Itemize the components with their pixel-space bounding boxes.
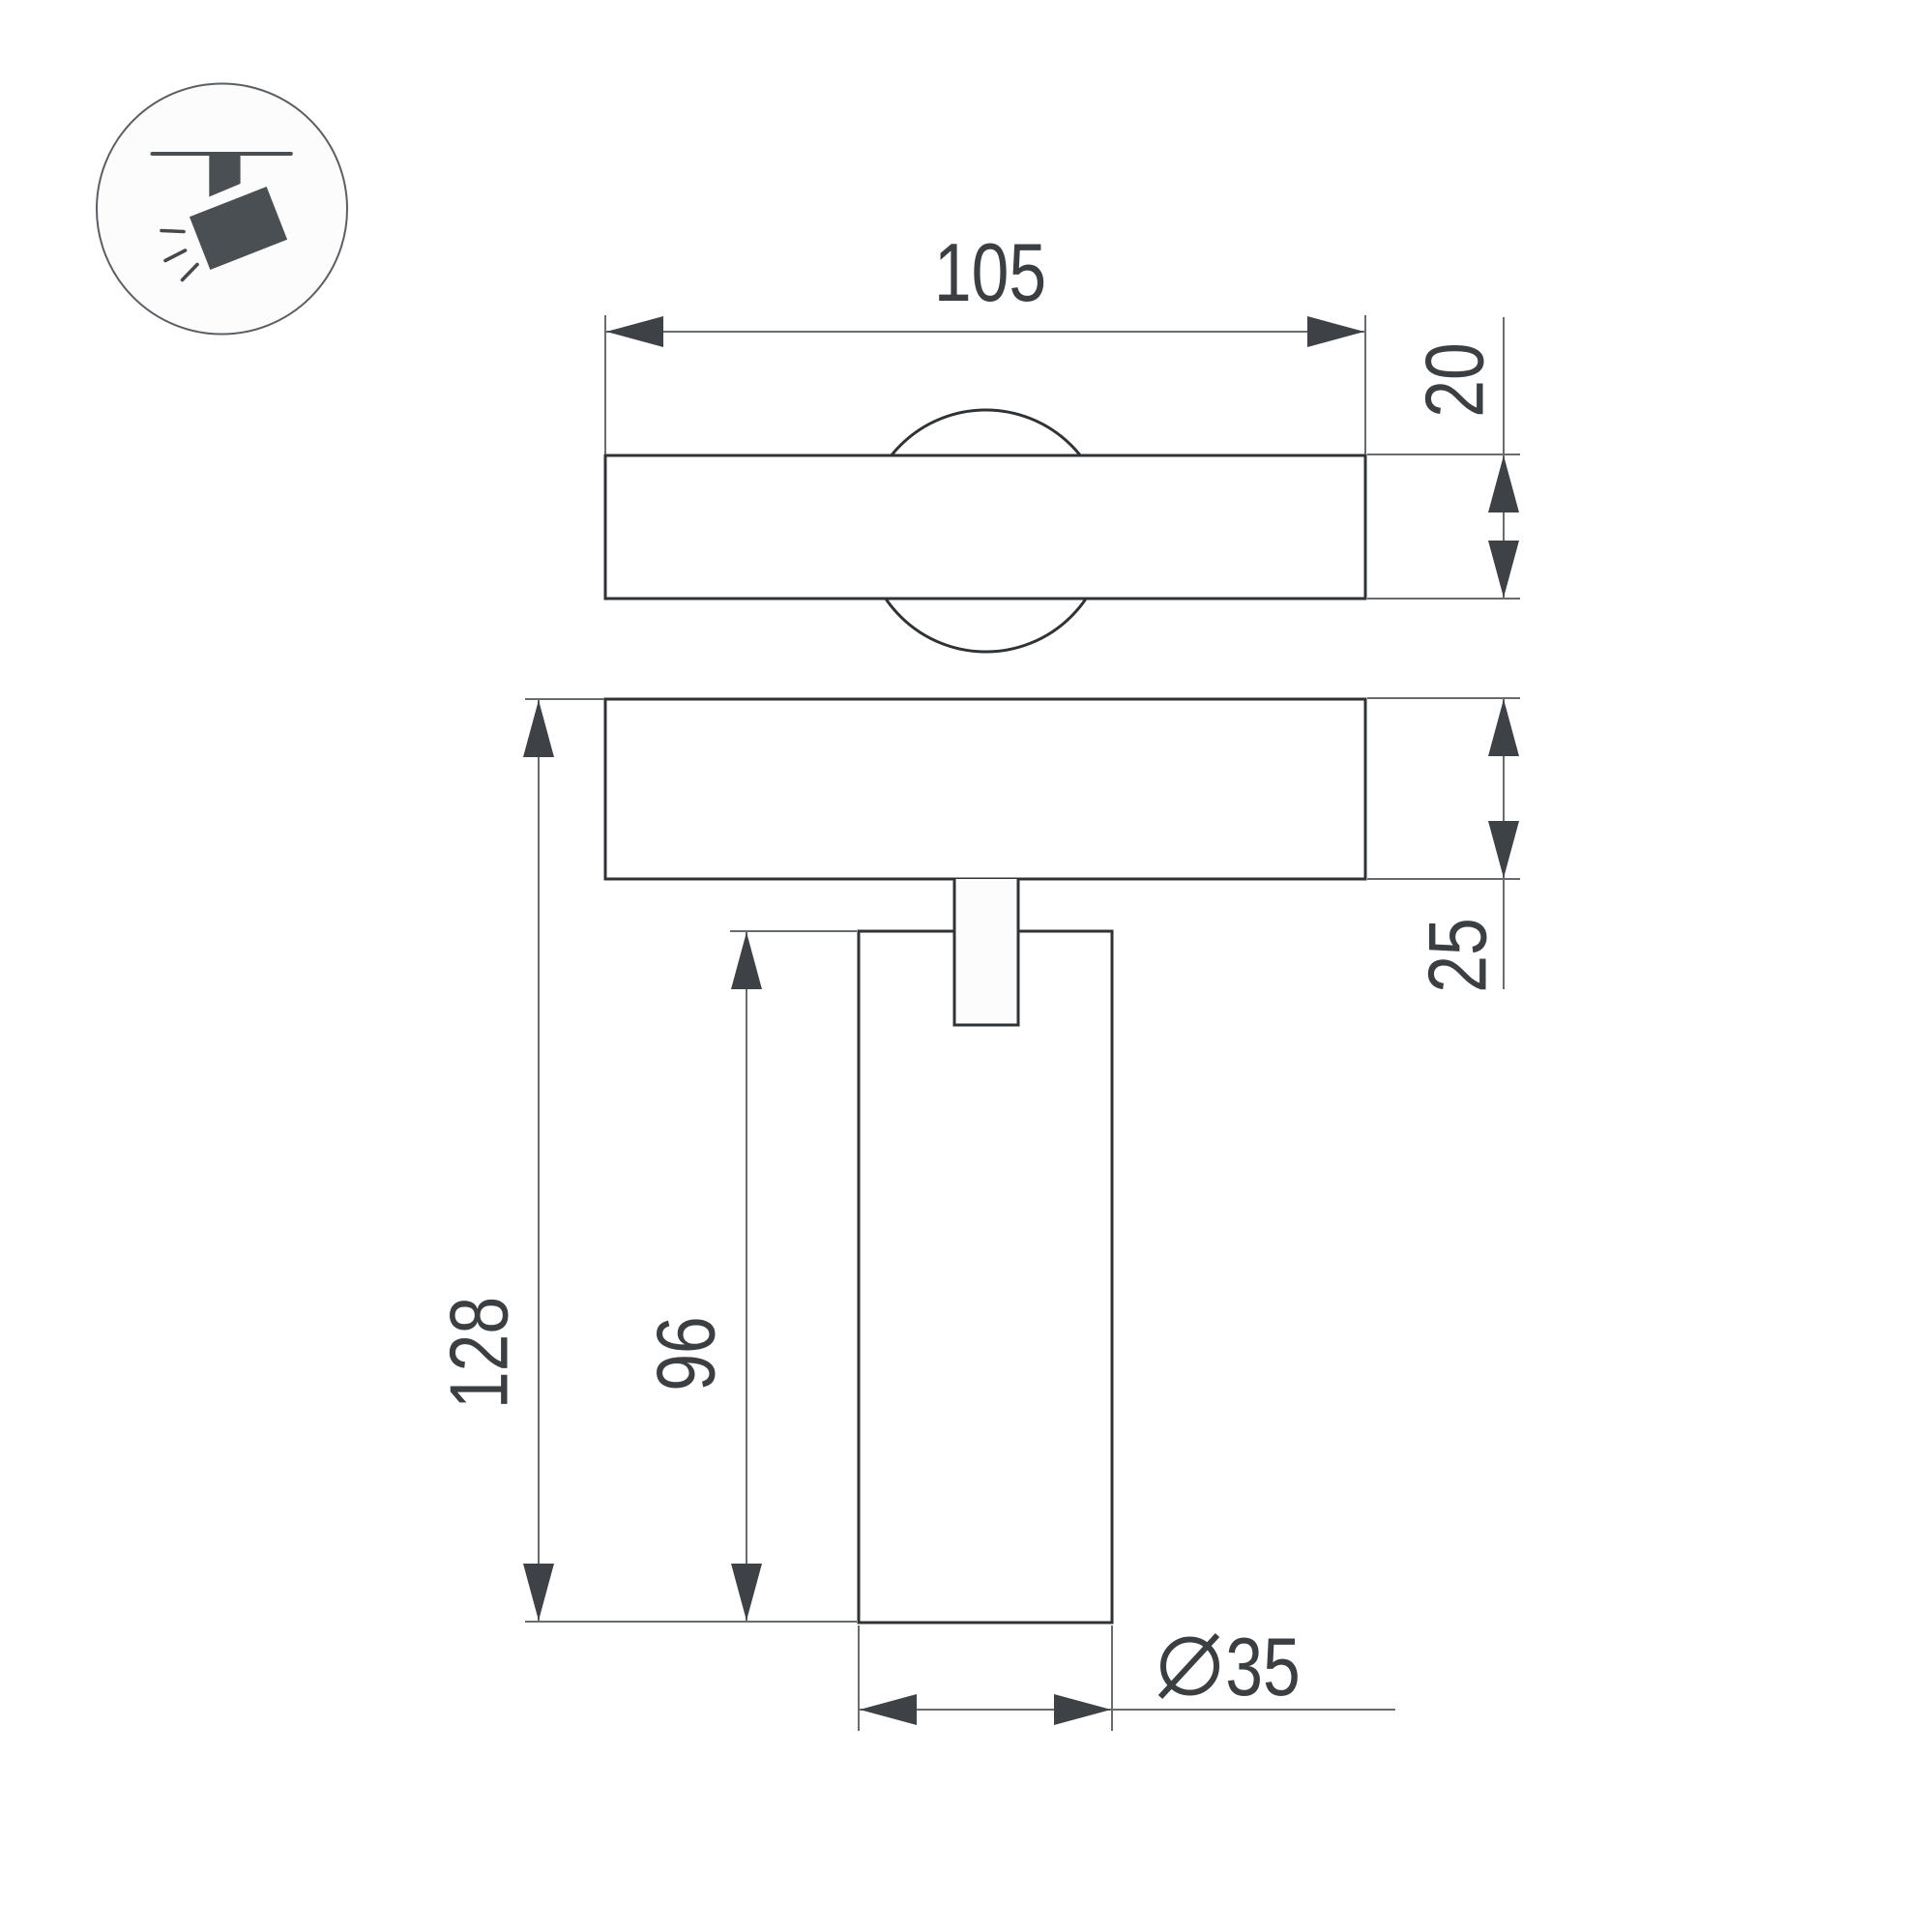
svg-text:105: 105: [934, 228, 1046, 319]
svg-text:20: 20: [1410, 342, 1501, 418]
svg-text:128: 128: [434, 1297, 525, 1409]
svg-text:35: 35: [1225, 1623, 1301, 1713]
svg-text:25: 25: [1413, 918, 1504, 993]
svg-text:96: 96: [641, 1316, 732, 1391]
